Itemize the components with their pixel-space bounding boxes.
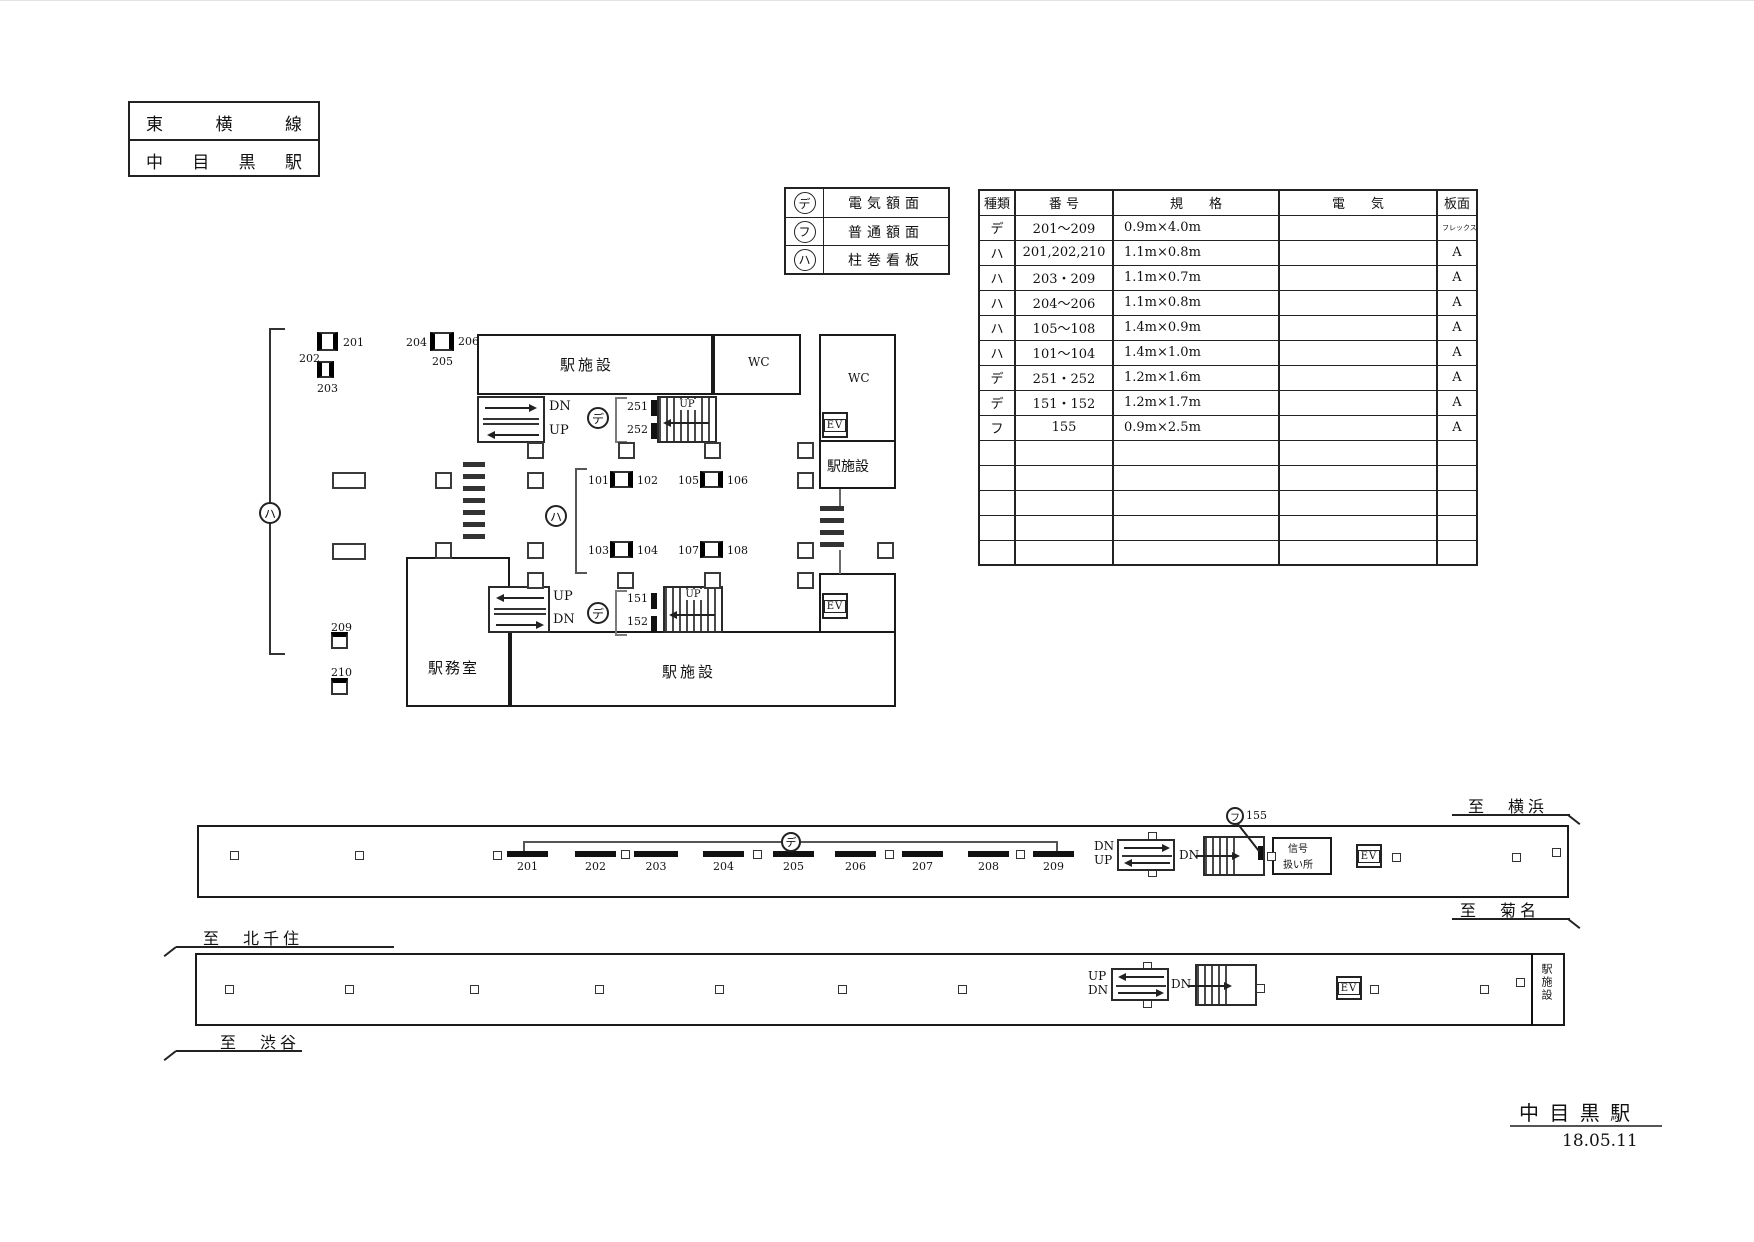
platform-column bbox=[1392, 853, 1401, 862]
spec-cell: 0.9m×2.5m bbox=[1113, 415, 1279, 440]
sign-number: 101 bbox=[588, 474, 609, 487]
platform-sign-bar bbox=[773, 851, 814, 857]
spec-cell bbox=[1279, 290, 1437, 315]
legend-row: デ 電気額面 bbox=[786, 189, 948, 217]
platform-column bbox=[470, 985, 479, 994]
room-label: 駅施設 bbox=[560, 354, 614, 375]
platform-escalator bbox=[1117, 839, 1175, 871]
up-label: UP bbox=[676, 399, 697, 410]
escalator-line bbox=[494, 613, 546, 615]
stairs-lower: UP bbox=[663, 586, 723, 633]
spec-cell: 1.4m×1.0m bbox=[1113, 340, 1279, 365]
spec-cell: 201〜209 bbox=[1015, 215, 1113, 240]
circled-fu-icon: フ bbox=[1226, 807, 1244, 825]
sign-number: 102 bbox=[637, 474, 658, 487]
spec-row: ハ204〜2061.1m×0.8mA bbox=[979, 290, 1477, 315]
spec-cell: 204〜206 bbox=[1015, 290, 1113, 315]
pillar-sign bbox=[610, 541, 633, 558]
platform-column bbox=[1267, 852, 1276, 861]
column-marker bbox=[618, 442, 635, 459]
station-name-row: 中目黒駅 bbox=[130, 139, 318, 175]
spec-cell: 251・252 bbox=[1015, 365, 1113, 390]
up-label: UP bbox=[553, 589, 573, 604]
up-label: UP bbox=[1094, 853, 1112, 867]
pillar-sign-top bbox=[331, 678, 348, 695]
platform-column bbox=[838, 985, 847, 994]
column-marker bbox=[704, 442, 721, 459]
platform-column bbox=[1516, 978, 1525, 987]
dn-label: DN bbox=[549, 399, 571, 414]
column-marker bbox=[435, 542, 452, 559]
spec-header-row: 種類 番 号 規 格 電 気 板面 bbox=[979, 190, 1477, 215]
ticket-gates-left bbox=[463, 462, 485, 542]
down-arrow bbox=[1196, 855, 1238, 857]
spec-cell: 1.1m×0.8m bbox=[1113, 240, 1279, 265]
sign-number: 252 bbox=[627, 423, 648, 436]
spec-cell: 1.2m×1.6m bbox=[1113, 365, 1279, 390]
platform-column bbox=[621, 850, 630, 859]
spec-cell: ハ bbox=[979, 240, 1015, 265]
circled-ha-icon: ハ bbox=[259, 502, 281, 524]
platform-column bbox=[715, 985, 724, 994]
room-divider bbox=[1531, 953, 1533, 1026]
up-arrow bbox=[1120, 976, 1164, 978]
platform-sign-bar bbox=[703, 851, 744, 857]
sign-number: 204 bbox=[405, 336, 427, 349]
platform-sign-bar bbox=[835, 851, 876, 857]
elevator-box: EV bbox=[822, 593, 848, 619]
pillar-sign bbox=[610, 471, 633, 488]
spec-cell: 155 bbox=[1015, 415, 1113, 440]
platform-sign-bar bbox=[902, 851, 943, 857]
up-arrow bbox=[498, 597, 544, 599]
platform-column bbox=[885, 850, 894, 859]
pillar-sign bbox=[430, 332, 454, 351]
room-label: 駅施設 bbox=[827, 456, 869, 476]
up-arrow bbox=[1126, 862, 1170, 864]
spec-cell: ハ bbox=[979, 315, 1015, 340]
escalator-line bbox=[483, 418, 539, 420]
sign-number: 203 bbox=[317, 382, 338, 395]
down-arrow bbox=[496, 624, 542, 626]
circled-fu-icon: フ bbox=[794, 221, 816, 243]
legend-symbol-cell: ハ bbox=[786, 246, 824, 273]
legend-symbol-cell: デ bbox=[786, 189, 824, 217]
spec-cell: A bbox=[1437, 290, 1477, 315]
station-signage-drawing: 東横線 中目黒駅 デ 電気額面 フ 普通額面 ハ 柱巻看板 種類 番 号 規 格… bbox=[0, 0, 1754, 1242]
up-label: UP bbox=[682, 589, 703, 600]
platform-column bbox=[1370, 985, 1379, 994]
column-marker bbox=[797, 572, 814, 589]
wall-stub bbox=[839, 550, 841, 574]
up-label: UP bbox=[549, 423, 569, 438]
platform-column bbox=[753, 850, 762, 859]
destination-line bbox=[1452, 918, 1570, 920]
spec-row: ハ101〜1041.4m×1.0mA bbox=[979, 340, 1477, 365]
spec-cell: A bbox=[1437, 265, 1477, 290]
spec-cell: 1.1m×0.8m bbox=[1113, 290, 1279, 315]
circled-ha-icon: ハ bbox=[545, 505, 567, 527]
column-marker bbox=[527, 542, 544, 559]
spec-empty-row bbox=[979, 465, 1477, 490]
spec-row: ハ203・2091.1m×0.7mA bbox=[979, 265, 1477, 290]
legend-row: フ 普通額面 bbox=[786, 217, 948, 245]
platform-column bbox=[230, 851, 239, 860]
up-label: UP bbox=[1088, 969, 1106, 983]
room-label-wc: WC bbox=[748, 355, 770, 369]
line-name: 東横線 bbox=[146, 110, 302, 135]
spec-cell bbox=[1279, 265, 1437, 290]
spec-cell: 1.1m×0.7m bbox=[1113, 265, 1279, 290]
platform-sign-number: 205 bbox=[773, 860, 814, 873]
platform-sign-number: 201 bbox=[507, 860, 548, 873]
direction-arrow-icon bbox=[1567, 918, 1580, 929]
legend-label: 普通額面 bbox=[824, 222, 948, 242]
sign-number: 205 bbox=[432, 355, 453, 368]
spec-cell: 0.9m×4.0m bbox=[1113, 215, 1279, 240]
spec-cell: A bbox=[1437, 390, 1477, 415]
column-marker bbox=[704, 572, 721, 589]
sign-number: 210 bbox=[331, 666, 352, 679]
elevator-label: EV bbox=[824, 419, 847, 432]
elevator-box: EV bbox=[1356, 844, 1382, 868]
destination-line bbox=[176, 1050, 302, 1052]
spec-cell: フレックスシート bbox=[1437, 215, 1477, 240]
escalator-line bbox=[494, 608, 546, 610]
spec-row: デ251・2521.2m×1.6mA bbox=[979, 365, 1477, 390]
wide-column-marker bbox=[332, 472, 366, 489]
platform-column bbox=[355, 851, 364, 860]
platform-column bbox=[1256, 984, 1265, 993]
platform-sign-number: 208 bbox=[968, 860, 1009, 873]
legend-symbol-cell: フ bbox=[786, 218, 824, 245]
platform-sign-bar bbox=[1033, 851, 1074, 857]
platform-escalator bbox=[1111, 968, 1169, 1001]
spec-cell: デ bbox=[979, 365, 1015, 390]
column-marker bbox=[797, 542, 814, 559]
platform-sign-bar bbox=[507, 851, 548, 857]
spec-header: 板面 bbox=[1437, 190, 1477, 215]
spec-empty-row bbox=[979, 490, 1477, 515]
spec-cell: ハ bbox=[979, 290, 1015, 315]
spec-cell bbox=[1279, 240, 1437, 265]
circled-ha-icon: ハ bbox=[794, 249, 816, 271]
spec-cell bbox=[1279, 365, 1437, 390]
platform-sign-number: 207 bbox=[902, 860, 943, 873]
spec-cell bbox=[1279, 215, 1437, 240]
spec-cell: 105〜108 bbox=[1015, 315, 1113, 340]
elevator-box: EV bbox=[1336, 976, 1362, 1000]
elevator-label: EV bbox=[1338, 982, 1361, 995]
footer-station-name: 中 目 黒 駅 bbox=[1519, 1097, 1632, 1126]
platform-column bbox=[345, 985, 354, 994]
spec-cell: A bbox=[1437, 415, 1477, 440]
signal-room-label: 扱い所 bbox=[1283, 856, 1313, 871]
pillar-sign-top bbox=[331, 632, 348, 649]
spec-cell: 203・209 bbox=[1015, 265, 1113, 290]
spec-cell bbox=[1279, 415, 1437, 440]
platform-sign-number: 206 bbox=[835, 860, 876, 873]
platform-sign-number: 202 bbox=[575, 860, 616, 873]
spec-cell: デ bbox=[979, 390, 1015, 415]
destination-line bbox=[176, 946, 394, 948]
sign-number: 152 bbox=[627, 615, 648, 628]
spec-cell: 101〜104 bbox=[1015, 340, 1113, 365]
down-arrow bbox=[1188, 985, 1230, 987]
direction-arrow-icon bbox=[1567, 814, 1580, 825]
spec-cell: A bbox=[1437, 315, 1477, 340]
legend-label: 柱巻看板 bbox=[824, 250, 948, 270]
spec-row: デ151・1521.2m×1.7mA bbox=[979, 390, 1477, 415]
dn-label: DN bbox=[1088, 983, 1108, 997]
sign-legend: デ 電気額面 フ 普通額面 ハ 柱巻看板 bbox=[784, 187, 950, 275]
spec-cell bbox=[1279, 390, 1437, 415]
signal-room-label: 信号 bbox=[1288, 840, 1308, 855]
column-marker bbox=[797, 472, 814, 489]
circled-de-icon: デ bbox=[587, 602, 609, 624]
escalator-line bbox=[483, 423, 539, 425]
direction-arrow-icon bbox=[164, 1050, 177, 1061]
platform-column bbox=[595, 985, 604, 994]
escalator-line bbox=[1116, 985, 1166, 987]
elevator-label: EV bbox=[1358, 850, 1381, 863]
up-arrow bbox=[489, 434, 539, 436]
column-marker bbox=[527, 442, 544, 459]
platform-column bbox=[225, 985, 234, 994]
spec-cell bbox=[1279, 315, 1437, 340]
up-arrow bbox=[671, 614, 715, 616]
legend-row: ハ 柱巻看板 bbox=[786, 245, 948, 273]
spec-cell: A bbox=[1437, 365, 1477, 390]
platform-sign-number: 204 bbox=[703, 860, 744, 873]
sign-number: 106 bbox=[727, 474, 748, 487]
sign-number: 206 bbox=[458, 335, 479, 348]
column-marker bbox=[527, 572, 544, 589]
dn-label: DN bbox=[553, 612, 575, 627]
dn-label: DN bbox=[1171, 977, 1191, 991]
sign-face-bar bbox=[651, 593, 657, 609]
elevator-label: EV bbox=[824, 600, 847, 613]
line-name-row: 東横線 bbox=[130, 103, 318, 139]
column-marker bbox=[877, 542, 894, 559]
pillar-sign bbox=[700, 541, 723, 558]
circled-de-icon: デ bbox=[781, 832, 801, 852]
platform-column bbox=[1512, 853, 1521, 862]
spec-row: ハ105〜1081.4m×0.9mA bbox=[979, 315, 1477, 340]
spec-empty-row bbox=[979, 540, 1477, 565]
sign-number: 201 bbox=[343, 336, 364, 349]
group-bracket-101-108 bbox=[575, 468, 587, 574]
spec-cell: フ bbox=[979, 415, 1015, 440]
ticket-gates-right bbox=[820, 506, 844, 550]
station-name: 中目黒駅 bbox=[146, 148, 302, 173]
sign-face-bar bbox=[651, 616, 657, 632]
pillar-sign bbox=[317, 332, 338, 351]
platform-sign-bar bbox=[968, 851, 1009, 857]
elevator-box: EV bbox=[822, 412, 848, 438]
spec-header: 種類 bbox=[979, 190, 1015, 215]
circled-de-icon: デ bbox=[587, 407, 609, 429]
platform-sign-number: 203 bbox=[634, 860, 678, 873]
column-marker bbox=[617, 572, 634, 589]
sign-number: 107 bbox=[678, 544, 699, 557]
spec-row: フ1550.9m×2.5mA bbox=[979, 415, 1477, 440]
column-marker bbox=[435, 472, 452, 489]
sign-face-bar bbox=[1258, 846, 1263, 860]
spec-header: 規 格 bbox=[1113, 190, 1279, 215]
room-label-vertical: 駅施設 bbox=[1538, 963, 1554, 1002]
spec-row: ハ201,202,2101.1m×0.8mA bbox=[979, 240, 1477, 265]
room-label: 駅施設 bbox=[662, 661, 716, 682]
escalator-lower bbox=[488, 586, 550, 633]
platform-sign-bar bbox=[634, 851, 678, 857]
footer-date: 18.05.11 bbox=[1562, 1131, 1638, 1151]
spec-cell: 201,202,210 bbox=[1015, 240, 1113, 265]
down-arrow bbox=[1124, 847, 1168, 849]
down-arrow bbox=[485, 407, 535, 409]
pillar-sign bbox=[700, 471, 723, 488]
sign-number: 209 bbox=[331, 621, 352, 634]
spec-cell: デ bbox=[979, 215, 1015, 240]
group-bracket-251-252 bbox=[615, 397, 627, 443]
sign-number: 202 bbox=[299, 352, 320, 365]
spec-cell: 1.2m×1.7m bbox=[1113, 390, 1279, 415]
platform-column bbox=[1016, 850, 1025, 859]
spec-cell: ハ bbox=[979, 265, 1015, 290]
sign-number: 155 bbox=[1246, 809, 1267, 822]
escalator-upper bbox=[477, 396, 545, 443]
platform-column bbox=[1552, 848, 1561, 857]
spec-cell: 1.4m×0.9m bbox=[1113, 315, 1279, 340]
spec-cell: A bbox=[1437, 240, 1477, 265]
spec-row: デ201〜2090.9m×4.0mフレックスシート bbox=[979, 215, 1477, 240]
dn-label: DN bbox=[1094, 839, 1114, 853]
column-marker bbox=[527, 472, 544, 489]
spec-empty-row bbox=[979, 515, 1477, 540]
stairs-upper: UP bbox=[657, 396, 717, 443]
direction-arrow-icon bbox=[164, 946, 177, 957]
sign-number: 108 bbox=[727, 544, 748, 557]
sign-number: 103 bbox=[588, 544, 609, 557]
spec-empty-row bbox=[979, 440, 1477, 465]
platform-column bbox=[958, 985, 967, 994]
platform-sign-bar bbox=[575, 851, 616, 857]
sign-number: 251 bbox=[627, 400, 648, 413]
destination-line bbox=[1452, 814, 1570, 816]
up-arrow bbox=[665, 422, 709, 424]
room-label: 駅務室 bbox=[428, 657, 479, 678]
title-block: 東横線 中目黒駅 bbox=[128, 101, 320, 177]
platform-column bbox=[1480, 985, 1489, 994]
sign-number: 105 bbox=[678, 474, 699, 487]
column-marker bbox=[797, 442, 814, 459]
room-label-wc: WC bbox=[848, 371, 870, 385]
legend-label: 電気額面 bbox=[824, 193, 948, 213]
spec-cell bbox=[1279, 340, 1437, 365]
sign-number: 104 bbox=[637, 544, 658, 557]
spec-cell: A bbox=[1437, 340, 1477, 365]
wide-column-marker bbox=[332, 543, 366, 560]
left-group-bracket bbox=[269, 328, 285, 655]
spec-table: 種類 番 号 規 格 電 気 板面 デ201〜2090.9m×4.0mフレックス… bbox=[978, 189, 1478, 566]
escalator-line bbox=[1122, 855, 1172, 857]
spec-cell: ハ bbox=[979, 340, 1015, 365]
down-arrow bbox=[1118, 992, 1162, 994]
platform-column bbox=[493, 851, 502, 860]
spec-header: 電 気 bbox=[1279, 190, 1437, 215]
spec-cell: 151・152 bbox=[1015, 390, 1113, 415]
circled-de-icon: デ bbox=[794, 192, 816, 214]
spec-header: 番 号 bbox=[1015, 190, 1113, 215]
group-bracket-151-152 bbox=[615, 590, 627, 636]
sign-number: 151 bbox=[627, 592, 648, 605]
platform-sign-number: 209 bbox=[1033, 860, 1074, 873]
wall-stub bbox=[839, 489, 841, 506]
